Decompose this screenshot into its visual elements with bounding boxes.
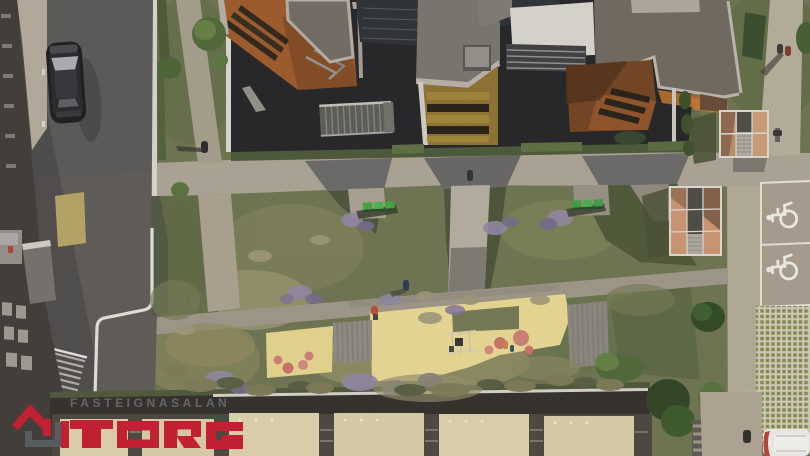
- svg-text:FASTEIGNASALAN: FASTEIGNASALAN: [70, 396, 230, 410]
